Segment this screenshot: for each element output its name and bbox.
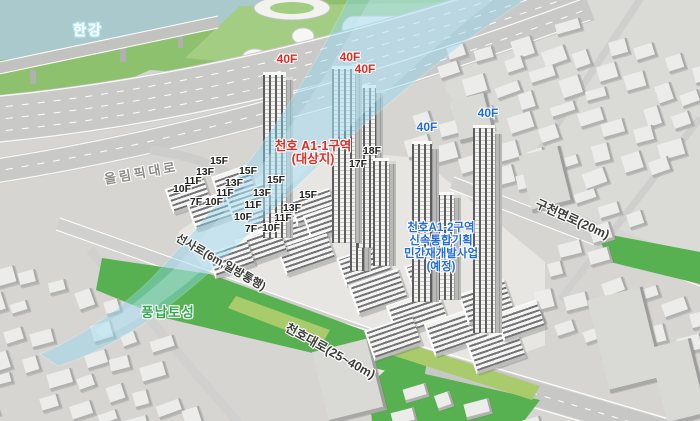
cheonho-daero-label: 천호대로(25~40m) [282, 317, 379, 382]
floor-label: 7F [245, 223, 257, 235]
floor-label: 40F [277, 52, 298, 66]
floor-label: 10F [234, 211, 252, 223]
floor-label: 40F [417, 120, 438, 134]
label-layer: 한강 올림픽대로 선사로(6m,일방통행) 천호대로(25~40m) 구천면로(… [0, 0, 700, 421]
han-river-label: 한강 [73, 20, 103, 40]
site-a12-label: 천호A1-2구역 신속통합기획 민간재개발사업 (예정) [404, 222, 478, 274]
floor-label: 18F [363, 145, 381, 157]
gucheon-road-label: 구천면로(20m) [533, 193, 613, 243]
seonsa-road-label: 선사로(6m,일방통행) [173, 230, 269, 295]
floor-label: 7F [190, 196, 202, 208]
floor-label: 10F [173, 183, 191, 195]
floor-label: 11F [274, 212, 292, 224]
floor-label: 11F [216, 187, 234, 199]
floor-label: 40F [355, 62, 376, 76]
floor-label: 15F [267, 174, 285, 186]
site-a11-subtitle: (대상지) [275, 153, 352, 166]
floor-label: 40F [478, 106, 499, 120]
floor-label: 15F [239, 165, 257, 177]
pungnap-toseong-label: 풍납토성 [141, 301, 195, 321]
floor-label: 13F [253, 187, 271, 199]
floor-label: 15F [299, 189, 317, 201]
floor-label: 17F [349, 158, 367, 170]
floor-label: 11F [244, 199, 262, 211]
aerial-map: 한강 올림픽대로 선사로(6m,일방통행) 천호대로(25~40m) 구천면로(… [0, 0, 700, 421]
site-a11-label: 천호 A1-1구역 (대상지) [275, 140, 352, 166]
olympic-road-label: 올림픽대로 [103, 156, 180, 188]
